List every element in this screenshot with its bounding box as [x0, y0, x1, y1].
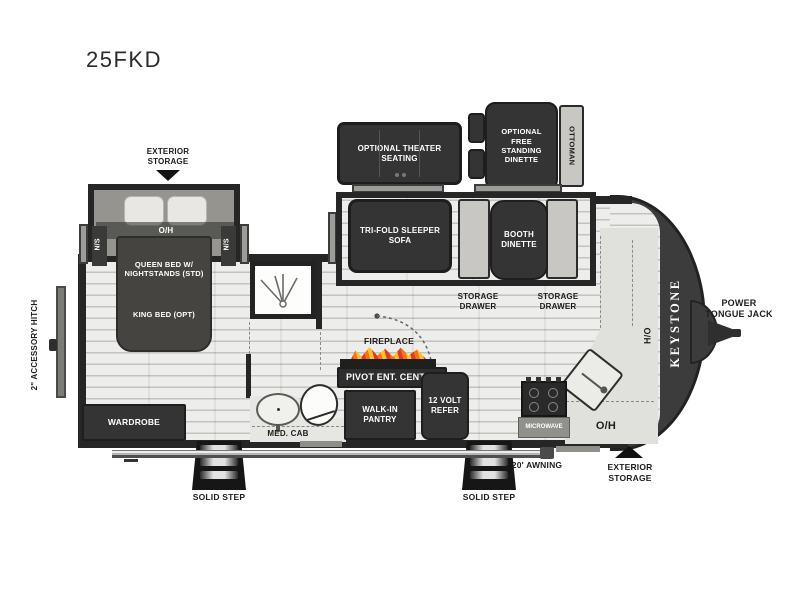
- storage-drawer-2-label: STORAGE DRAWER: [520, 292, 596, 312]
- dinette-chair: [468, 113, 485, 143]
- shower-spray-icon: [255, 266, 311, 314]
- bedroom-oh-label: O/H: [96, 226, 236, 236]
- burner-icon: [529, 388, 539, 398]
- queen-bed-label: QUEEN BED W/ NIGHTSTANDS (STD): [121, 260, 207, 279]
- ottoman: OTTOMAN: [559, 105, 584, 187]
- twelve-volt-refer-label: 12 VOLT REFER: [423, 396, 467, 416]
- tongue-jack-tip: [732, 329, 741, 337]
- bath-counter-dash: [252, 426, 344, 427]
- exterior-storage-top-label: EXTERIOR STORAGE: [126, 147, 210, 167]
- range-knob: [556, 377, 561, 382]
- king-bed-option-label: KING BED (OPT): [121, 310, 207, 319]
- wall-shower-right: [316, 261, 322, 329]
- slide-handle: [79, 224, 88, 264]
- exterior-storage-bottom-label: EXTERIOR STORAGE: [587, 462, 673, 483]
- theater-seating-label: OPTIONAL THEATER SEATING: [350, 144, 450, 164]
- walk-in-pantry-label: WALK-IN PANTRY: [350, 405, 410, 425]
- fireplace-label: FIREPLACE: [344, 336, 434, 347]
- toilet-seat-line: [306, 410, 335, 421]
- booth-bench-left: [458, 199, 490, 279]
- brand-label: KEYSTONE: [668, 268, 684, 378]
- burner-icon: [548, 402, 558, 412]
- range-knob: [536, 377, 541, 382]
- ho-label: H/O: [642, 318, 653, 354]
- bath-sink-drain: [277, 408, 280, 411]
- microwave-label: MICROWAVE: [519, 424, 569, 432]
- page-title: 25FKD: [86, 46, 206, 74]
- ottoman-label: OTTOMAN: [567, 126, 576, 165]
- wardrobe: WARDROBE: [82, 404, 186, 441]
- power-tongue-jack-label: POWER TONGUE JACK: [704, 298, 774, 321]
- dinette-chair: [468, 149, 485, 179]
- accessory-hitch-bar: [56, 286, 66, 398]
- solid-step-unit: [192, 441, 246, 490]
- tri-fold-sleeper-sofa: TRI-FOLD SLEEPER SOFA: [348, 199, 452, 273]
- awning-rail-tick: [124, 459, 138, 462]
- shower: [250, 261, 316, 319]
- ns-left-label: N/S: [95, 226, 104, 262]
- med-cab-label: MED. CAB: [246, 429, 330, 439]
- booth-dinette-label: BOOTH DINETTE: [494, 230, 544, 250]
- step-tread: [200, 471, 239, 479]
- kitchen-oh-label: O/H: [580, 420, 632, 434]
- tongue-jack-cone: [708, 320, 734, 346]
- wall-bath-left: [246, 354, 251, 398]
- range-knob: [526, 377, 531, 382]
- solid-step-1-label: SOLID STEP: [178, 492, 260, 503]
- arrow-down-icon: [156, 170, 180, 181]
- solid-step-2-label: SOLID STEP: [448, 492, 530, 503]
- storage-drawer-1-label: STORAGE DRAWER: [440, 292, 516, 312]
- slide-handle: [240, 224, 249, 264]
- queen-bed: [116, 236, 212, 352]
- counter-dash: [600, 236, 601, 328]
- burner-icon: [548, 388, 558, 398]
- door-slider: [556, 446, 600, 452]
- cupholder-icon: [402, 173, 406, 177]
- counter-dash: [632, 240, 633, 326]
- seat-divider: [419, 130, 420, 178]
- floorplan-canvas: 25FKD EXTERIOR STORAGE OPTIONAL THEATER …: [0, 0, 800, 600]
- step-tread: [470, 471, 509, 479]
- arrow-up-icon: [615, 446, 643, 458]
- optional-free-standing-dinette: OPTIONAL FREE STANDING DINETTE: [485, 102, 558, 190]
- ns-right-label: N/S: [224, 226, 233, 262]
- free-dinette-label: OPTIONAL FREE STANDING DINETTE: [491, 127, 553, 165]
- wardrobe-label: WARDROBE: [84, 417, 184, 428]
- booth-dinette-table: BOOTH DINETTE: [490, 200, 548, 280]
- awning-rail-end: [540, 447, 554, 459]
- step-tread: [470, 458, 509, 466]
- door-slider: [300, 441, 342, 447]
- range: [521, 381, 567, 417]
- awning-label: 20' AWNING: [506, 460, 568, 471]
- twelve-volt-refer: 12 VOLT REFER: [421, 372, 469, 440]
- sofa-label: TRI-FOLD SLEEPER SOFA: [355, 226, 445, 246]
- booth-bench-right: [546, 199, 578, 279]
- step-tread: [200, 458, 239, 466]
- range-knob: [546, 377, 551, 382]
- optional-theater-seating: OPTIONAL THEATER SEATING: [337, 122, 462, 185]
- seat-divider: [379, 130, 380, 178]
- cupholder-icon: [395, 173, 399, 177]
- kitchen-faucet-base: [599, 385, 609, 395]
- walk-in-pantry: WALK-IN PANTRY: [344, 390, 416, 440]
- microwave: MICROWAVE: [518, 417, 570, 438]
- awning-rail: [112, 450, 542, 458]
- door-opening: [249, 322, 250, 354]
- burner-icon: [529, 402, 539, 412]
- accessory-hitch-label: 2" ACCESSORY HITCH: [30, 290, 54, 400]
- door-opening: [320, 332, 321, 370]
